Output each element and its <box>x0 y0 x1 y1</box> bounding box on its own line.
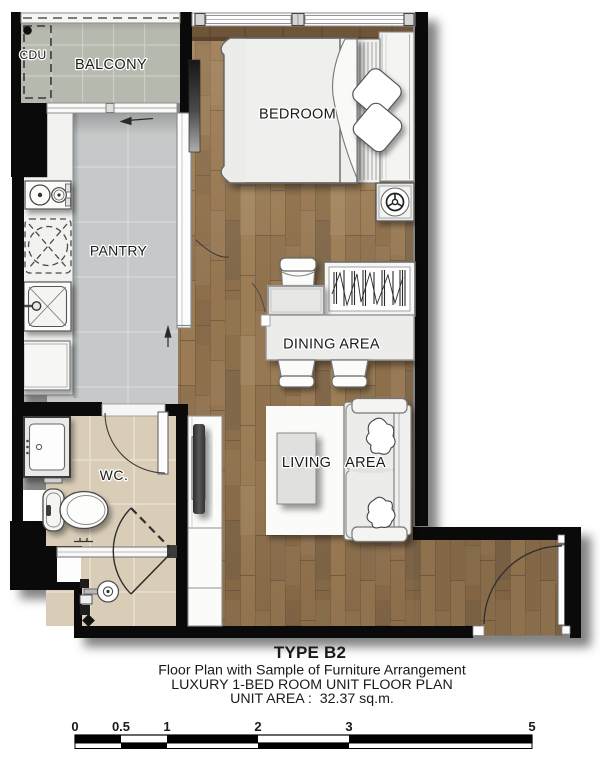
svg-text:BALCONY: BALCONY <box>75 57 147 73</box>
svg-text:AREA: AREA <box>345 455 386 471</box>
svg-text:WC.: WC. <box>100 467 129 483</box>
svg-text:5: 5 <box>528 719 535 734</box>
svg-text:BEDROOM: BEDROOM <box>259 107 336 123</box>
svg-text:DINING AREA: DINING AREA <box>283 337 380 353</box>
svg-text:UNIT AREA : 32.37 sq.m.: UNIT AREA : 32.37 sq.m. <box>230 691 394 707</box>
svg-text:1: 1 <box>163 719 170 734</box>
svg-text:CDU: CDU <box>20 48 47 62</box>
svg-text:PANTRY: PANTRY <box>90 243 148 259</box>
svg-text:0.5: 0.5 <box>112 719 130 734</box>
svg-text:LIVING: LIVING <box>282 455 331 471</box>
svg-text:TYPE B2: TYPE B2 <box>274 643 346 662</box>
svg-text:2: 2 <box>254 719 261 734</box>
svg-text:0: 0 <box>71 719 78 734</box>
svg-text:3: 3 <box>345 719 352 734</box>
